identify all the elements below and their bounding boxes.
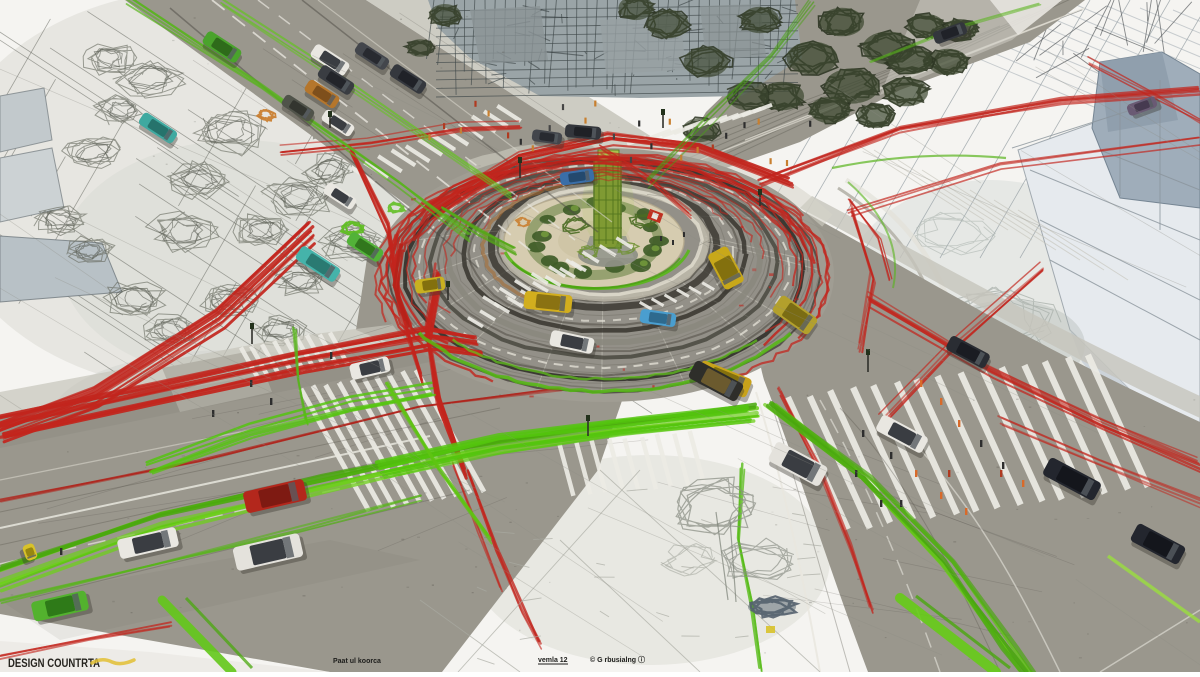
svg-text:© G rbusialng ⓘ: © G rbusialng ⓘ bbox=[590, 655, 645, 664]
svg-text:vemla 12: vemla 12 bbox=[538, 657, 568, 664]
svg-text:DESIGN COUNTRTA: DESIGN COUNTRTA bbox=[8, 656, 100, 670]
svg-text:Paat ul koorca: Paat ul koorca bbox=[333, 658, 381, 665]
